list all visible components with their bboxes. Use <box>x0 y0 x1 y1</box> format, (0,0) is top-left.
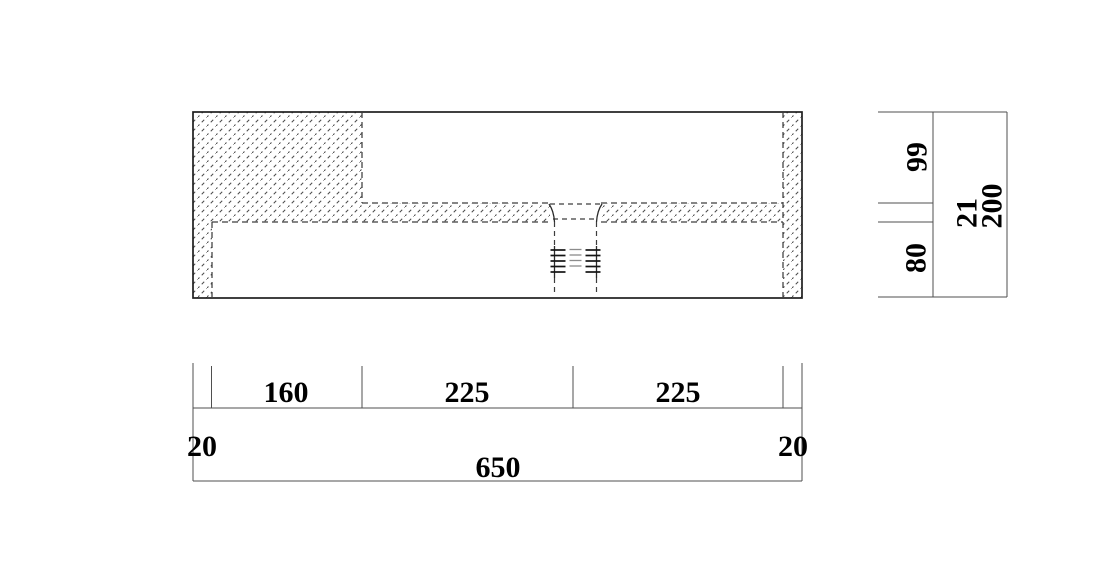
hatch-top-left-block <box>193 112 362 222</box>
dim-label-80: 80 <box>900 243 933 273</box>
dim-label-20-right: 20 <box>778 430 808 463</box>
dim-label-650: 650 <box>476 451 521 484</box>
section-view <box>193 112 802 298</box>
drawing-sheet: 160 225 225 20 20 650 99 21 200 80 <box>0 0 1112 568</box>
hatch-left-wall <box>193 222 212 298</box>
technical-drawing: 160 225 225 20 20 650 99 21 200 80 <box>0 0 1112 568</box>
dim-label-200: 200 <box>976 184 1009 229</box>
dim-label-20-left: 20 <box>187 430 217 463</box>
side-dimension-chain: 99 21 200 80 <box>878 112 1009 297</box>
hatch-slab-right-of-drain <box>601 203 783 222</box>
dim-label-99: 99 <box>901 142 934 172</box>
dim-label-160: 160 <box>264 376 309 409</box>
drain-detail <box>549 204 602 295</box>
thread-marks-right <box>586 250 601 272</box>
thread-marks-center <box>570 250 582 267</box>
thread-marks-left <box>551 250 566 272</box>
hatch-regions <box>193 112 802 298</box>
hatch-slab-left-of-drain <box>362 203 550 222</box>
hatch-right-wall <box>783 112 802 298</box>
dim-label-225-left: 225 <box>445 376 490 409</box>
dim-label-225-right: 225 <box>656 376 701 409</box>
bottom-dimension-chain: 160 225 225 20 20 650 <box>187 363 808 484</box>
